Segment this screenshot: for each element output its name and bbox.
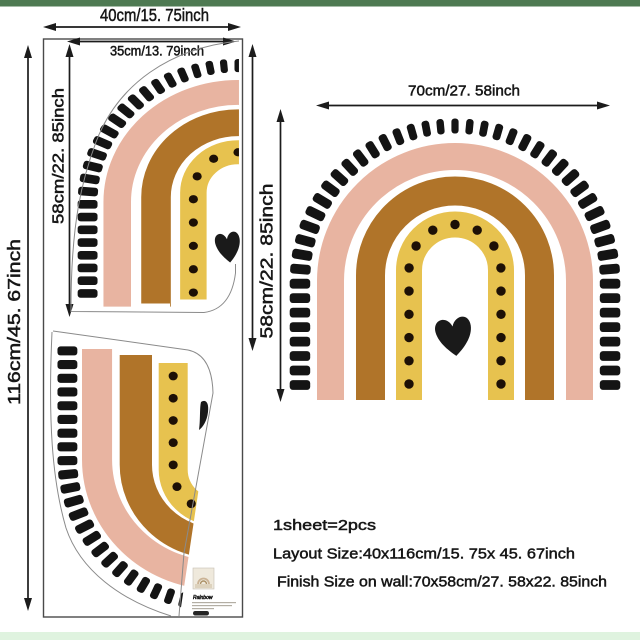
svg-text:40cm/15. 75inch: 40cm/15. 75inch <box>100 5 209 25</box>
svg-text:Layout Size:40x116cm/15. 75x 4: Layout Size:40x116cm/15. 75x 45. 67inch <box>273 546 575 563</box>
svg-text:Rainbow: Rainbow <box>193 595 213 601</box>
svg-text:70cm/27. 58inch: 70cm/27. 58inch <box>408 83 520 100</box>
svg-text:58cm/22. 85inch: 58cm/22. 85inch <box>51 88 68 224</box>
svg-text:1sheet=2pcs: 1sheet=2pcs <box>273 517 376 534</box>
svg-text:Finish Size on wall:70x58cm/27: Finish Size on wall:70x58cm/27. 58x22. 8… <box>277 574 607 591</box>
svg-text:35cm/13. 79inch: 35cm/13. 79inch <box>110 43 204 59</box>
svg-text:58cm/22. 85inch: 58cm/22. 85inch <box>257 184 277 339</box>
svg-text:116cm/45. 67inch: 116cm/45. 67inch <box>4 239 24 405</box>
